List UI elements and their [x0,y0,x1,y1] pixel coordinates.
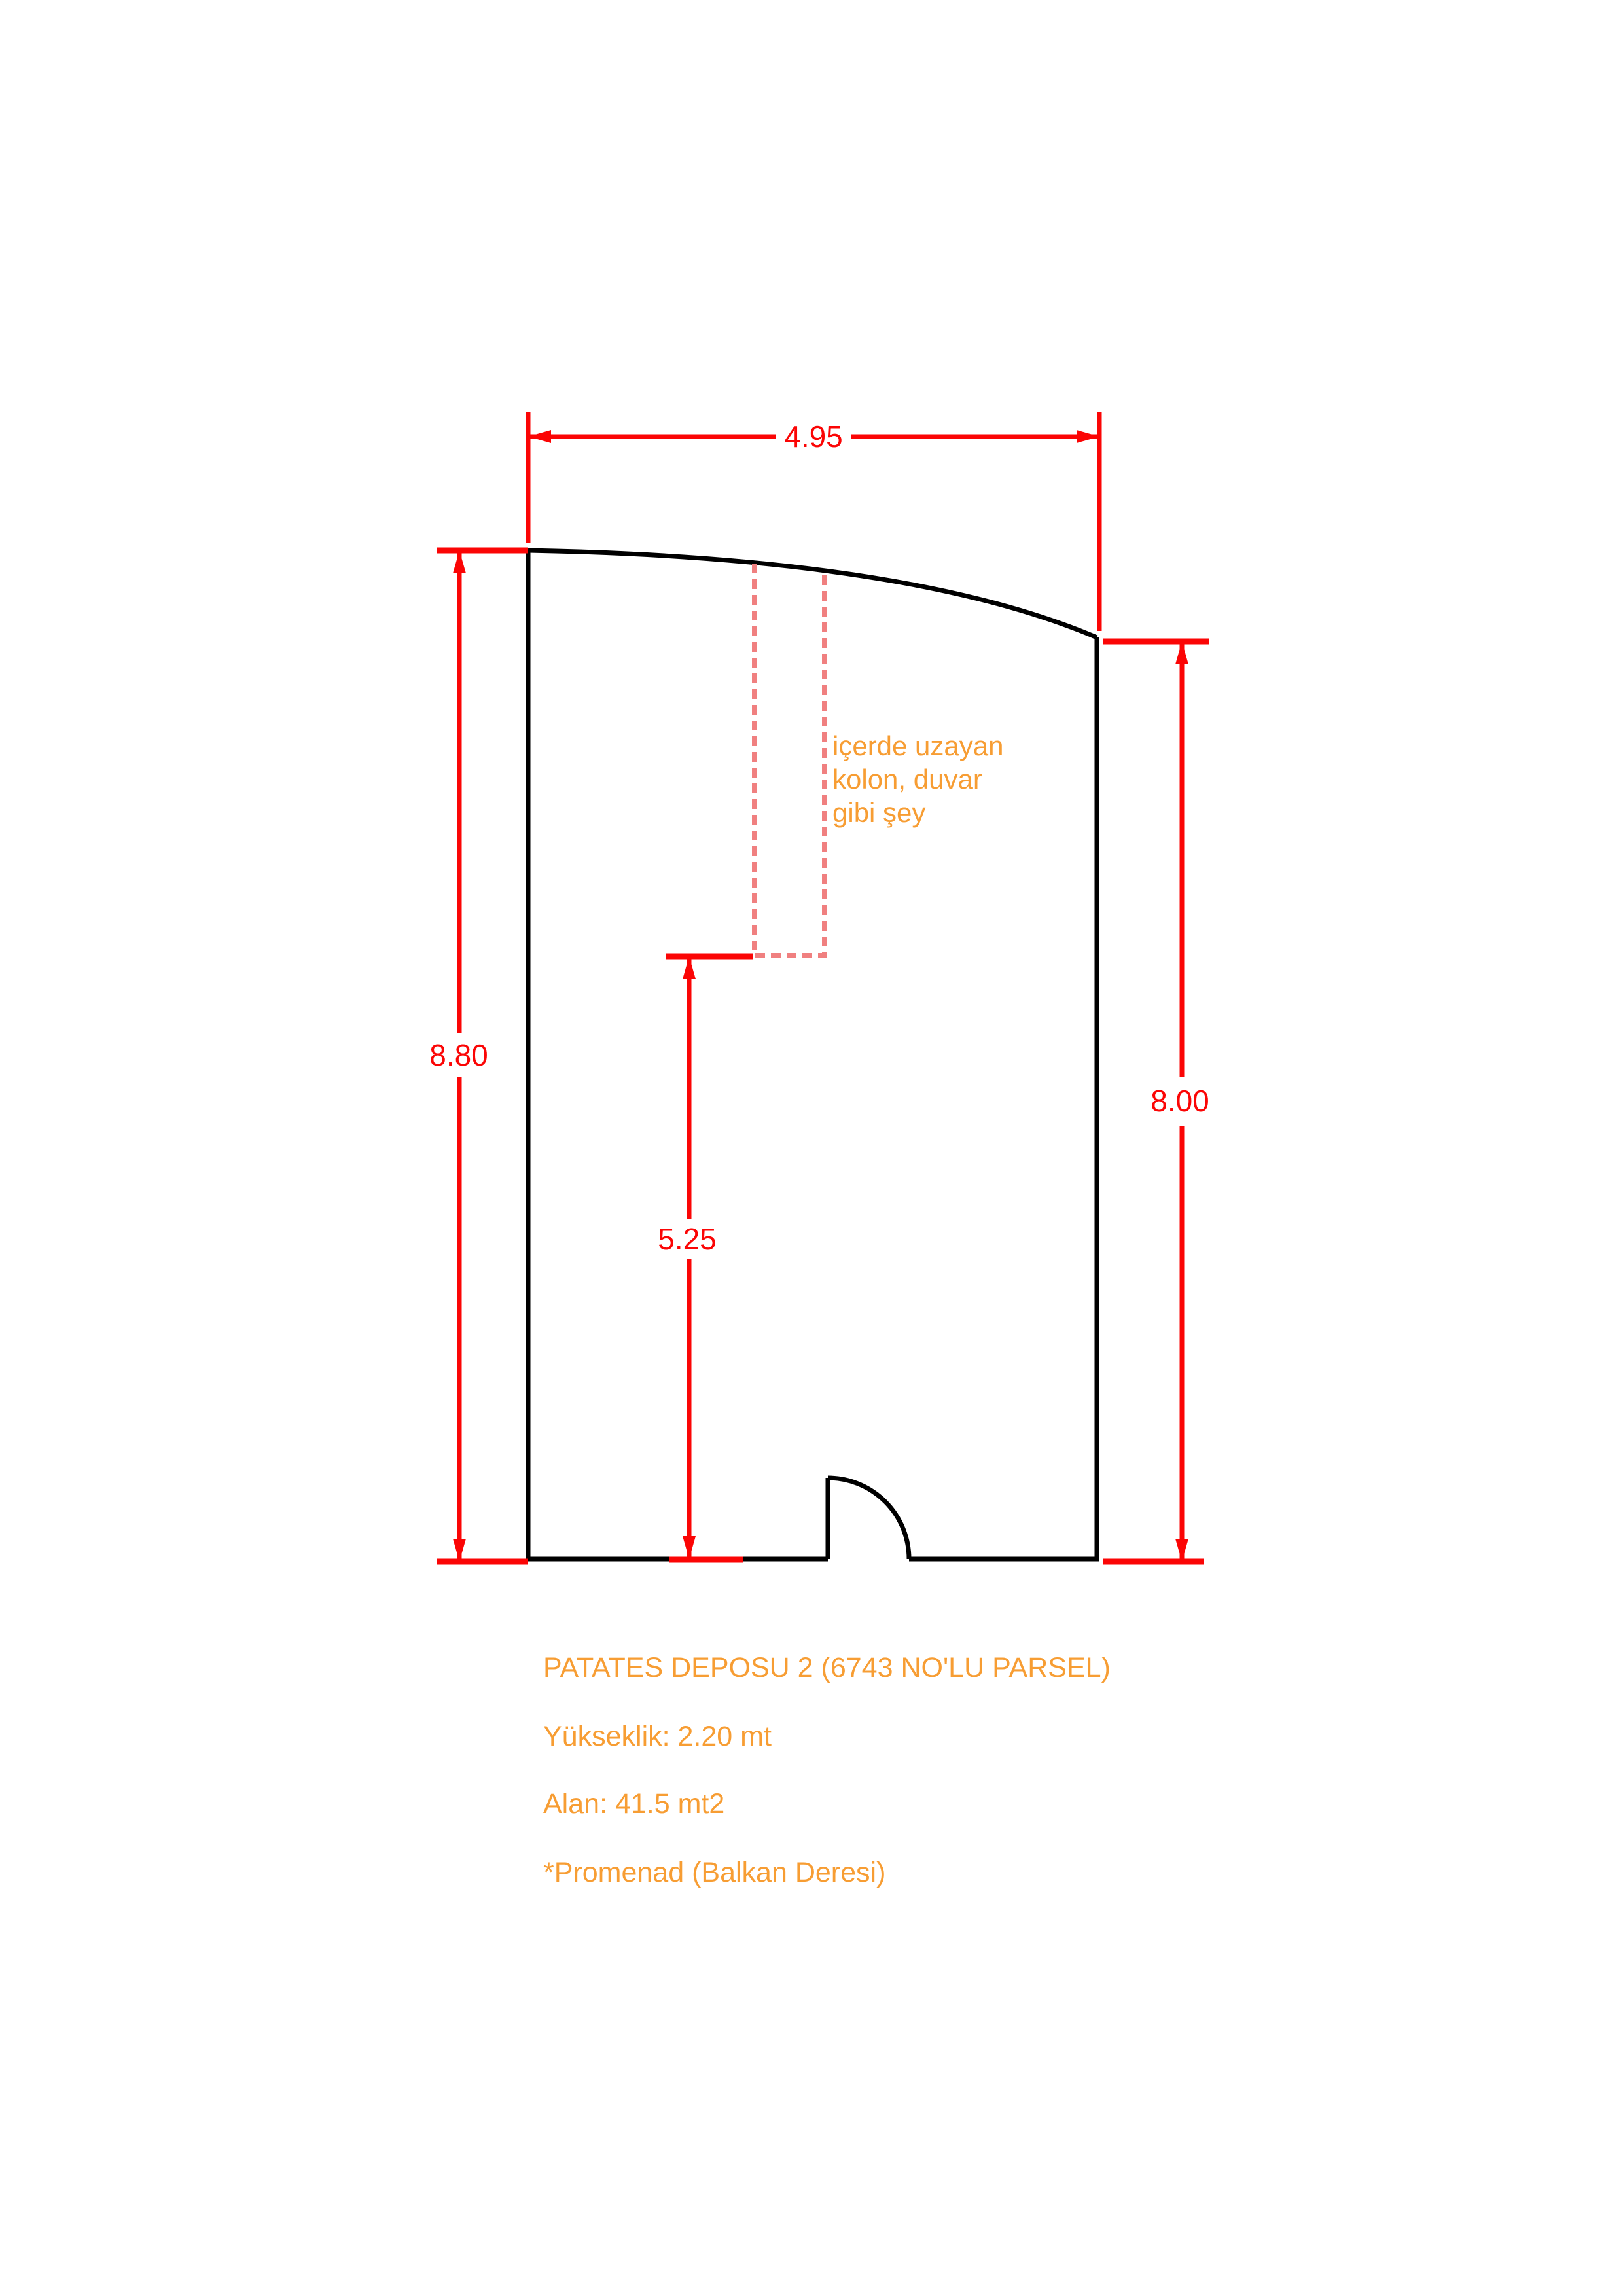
note-footnote: *Promenad (Balkan Deresi) [543,1857,885,1888]
interior-column-dashed-path [755,564,825,956]
dimension-interior-height: 5.25 [658,956,753,1560]
door [828,1478,909,1559]
dimension-top-width: 4.95 [528,412,1099,631]
floor-plan-canvas: 4.95 8.80 8.00 5.25 içerde uzayan kolon,… [0,0,1623,2296]
dimension-right-height-label: 8.00 [1150,1084,1209,1118]
arrowhead-up [1175,641,1188,664]
dimension-left-height: 8.80 [429,550,528,1562]
arrowhead-left [528,430,551,443]
dimension-top-width-label: 4.95 [784,420,843,454]
column-annotation-line-1: içerde uzayan [832,730,1004,761]
note-height: Yükseklik: 2.20 mt [543,1721,772,1752]
dimension-interior-height-label: 5.25 [658,1222,717,1256]
arrowhead-down [683,1536,696,1559]
door-swing-arc [828,1478,909,1559]
arrowhead-right [1077,430,1099,443]
dimension-right-height: 8.00 [1103,641,1209,1562]
left-wall-and-floor [528,550,828,1559]
column-annotation-line-2: kolon, duvar [832,764,982,795]
arrowhead-down [453,1539,466,1562]
plan-title: PATATES DEPOSU 2 (6743 NO'LU PARSEL) [543,1652,1111,1683]
dimension-left-height-label: 8.80 [429,1038,488,1072]
column-annotation: içerde uzayan kolon, duvar gibi şey [832,730,1004,828]
top-curved-wall [528,550,1097,637]
arrowhead-up [683,956,696,979]
note-area: Alan: 41.5 mt2 [543,1788,724,1820]
arrowhead-up [453,550,466,573]
interior-column-outline [755,564,825,956]
room-outline [528,550,1097,1559]
column-annotation-line-3: gibi şey [832,797,925,828]
arrowhead-down [1175,1539,1188,1562]
notes-block: PATATES DEPOSU 2 (6743 NO'LU PARSEL) Yük… [543,1652,1111,1888]
